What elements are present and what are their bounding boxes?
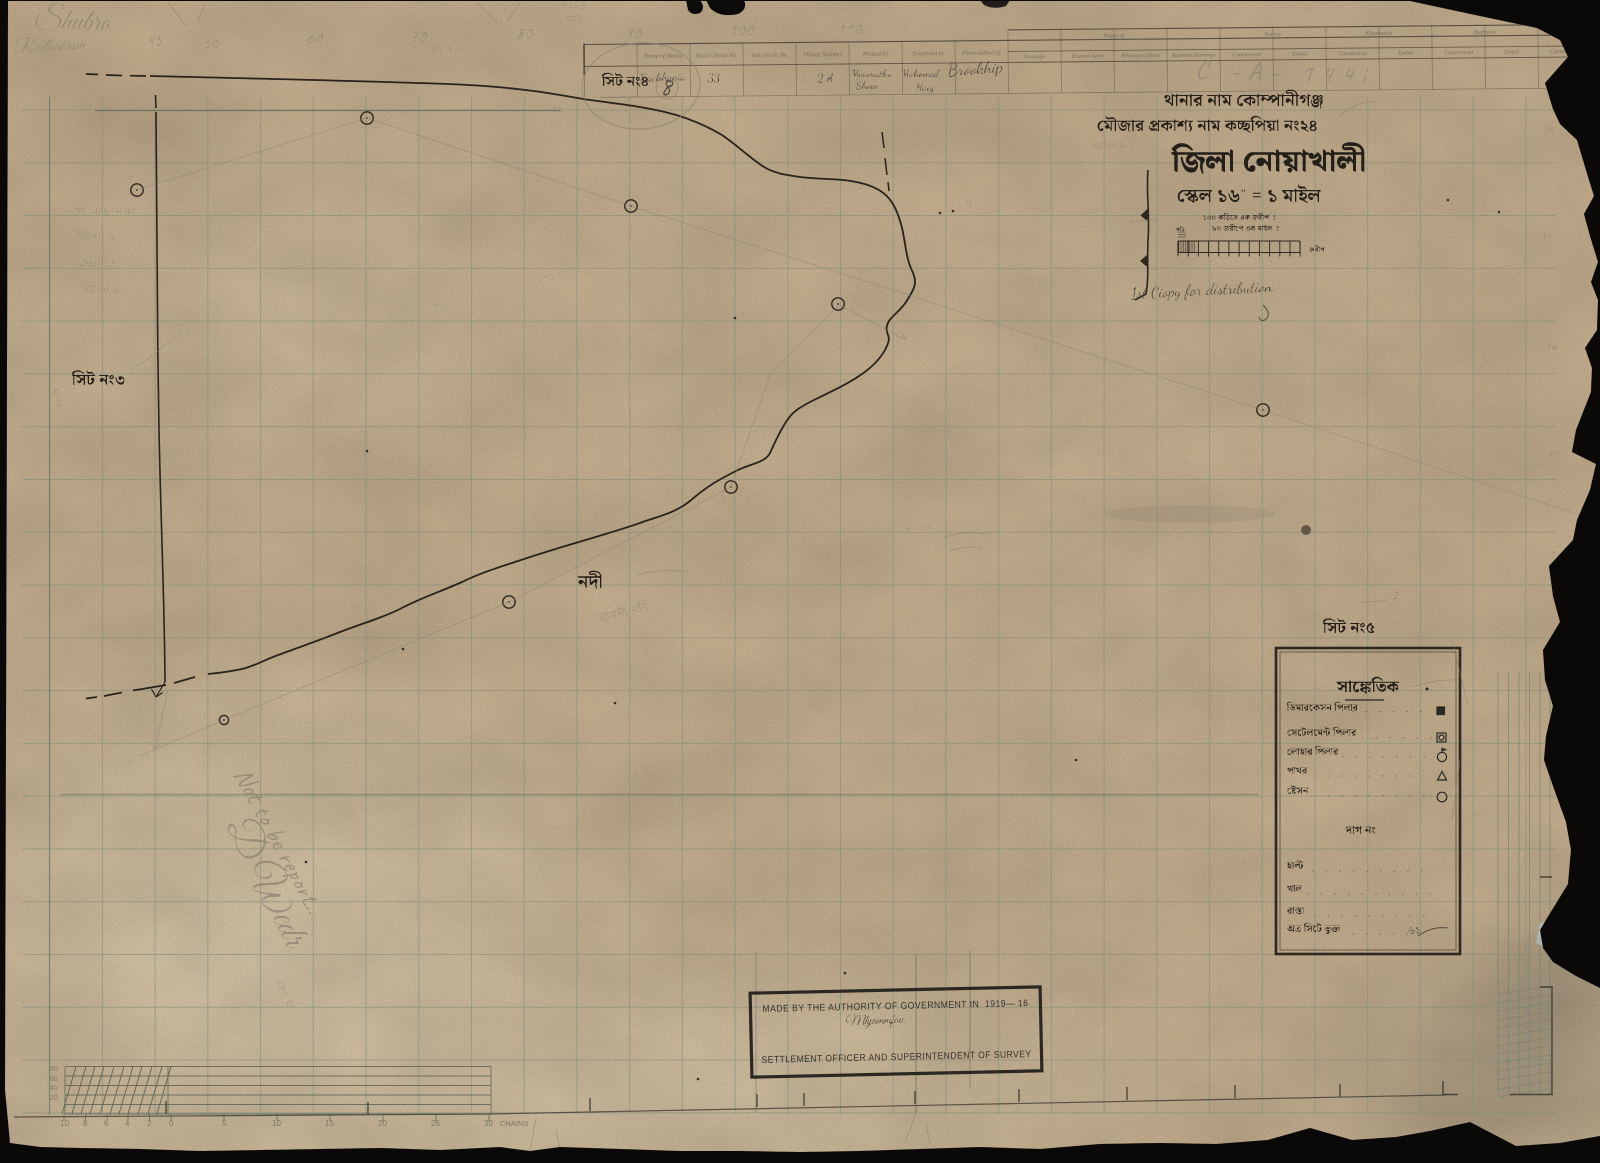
svg-text:Commenced: Commenced [1444, 50, 1473, 56]
svg-text:Village Number: Village Number [803, 51, 843, 58]
svg-text:Ended: Ended [1397, 51, 1413, 57]
svg-text:40: 40 [50, 1085, 58, 1092]
svg-text:Plane-tabled by: Plane-tabled by [961, 50, 1002, 57]
svg-text:10: 10 [272, 1119, 281, 1128]
svg-text:Main Circuit No.: Main Circuit No. [694, 52, 737, 59]
svg-text:20: 20 [378, 1119, 387, 1128]
svg-text:Survey: Survey [1264, 31, 1281, 38]
svg-text:Examined by: Examined by [911, 50, 944, 57]
svg-text:Name of Mauza: Name of Mauza [643, 53, 683, 60]
svg-text:10: 10 [60, 1119, 69, 1128]
svg-text:80: 80 [50, 1066, 58, 1073]
svg-text:Khanapuri: Khanapuri [1364, 30, 1392, 37]
svg-text:Commenced: Commenced [1338, 51, 1367, 57]
svg-text:15: 15 [325, 1119, 334, 1128]
svg-text:Ended: Ended [1503, 50, 1519, 56]
svg-text:25: 25 [431, 1119, 440, 1128]
svg-text:Commenced: Commenced [1232, 52, 1261, 58]
svg-text:0: 0 [169, 1119, 174, 1128]
svg-text:20: 20 [50, 1095, 58, 1102]
svg-text:60: 60 [50, 1076, 58, 1083]
svg-text:30: 30 [484, 1119, 493, 1128]
svg-text:Kanungo: Kanungo [1023, 54, 1045, 60]
svg-text:Plotted by: Plotted by [862, 51, 889, 58]
svg-text:CHAINS: CHAINS [500, 1119, 528, 1128]
svg-text:Bujharat: Bujharat [1474, 29, 1496, 36]
svg-text:6: 6 [104, 1119, 109, 1128]
svg-text:4: 4 [125, 1119, 130, 1128]
svg-text:Sub-circuit No.: Sub-circuit No. [751, 52, 789, 59]
svg-text:Khanapuri Amin: Khanapuri Amin [1120, 53, 1160, 59]
svg-text:Bujharat Kanungo: Bujharat Kanungo [1172, 52, 1215, 58]
svg-text:Name of: Name of [1102, 32, 1125, 39]
svg-text:2: 2 [147, 1119, 152, 1128]
svg-text:8: 8 [83, 1119, 88, 1128]
svg-text:Kistwar Amin: Kistwar Amin [1071, 54, 1104, 60]
svg-text:5: 5 [222, 1119, 227, 1128]
svg-text:Ended: Ended [1291, 52, 1307, 58]
